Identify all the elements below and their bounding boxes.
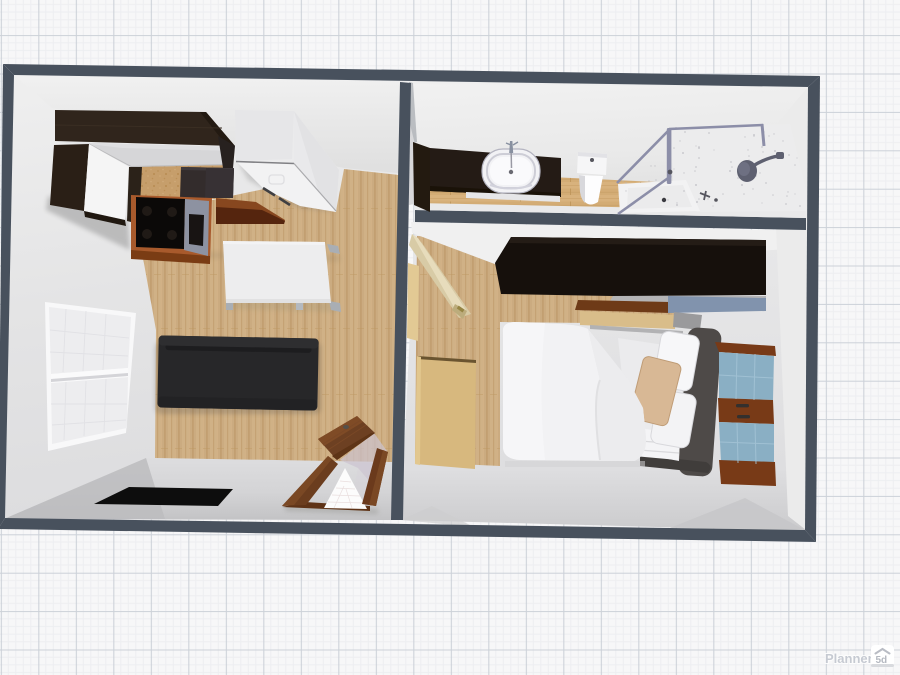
svg-text:5d: 5d bbox=[876, 655, 888, 666]
svg-text:Planner: Planner bbox=[825, 651, 873, 666]
